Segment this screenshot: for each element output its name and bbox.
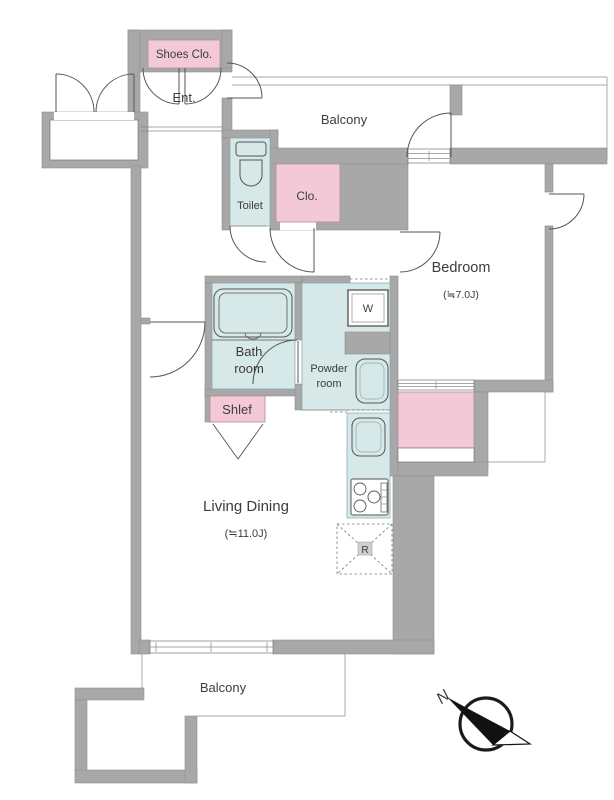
- shelf-label: Shlef: [222, 402, 252, 417]
- living-dining-label: Living Dining: [203, 498, 289, 515]
- living-dining-size-label: (≒11.0J): [225, 528, 268, 540]
- floor-plan: N Shoes Clo. Ent. Balcony Toilet Clo. Be…: [0, 0, 614, 800]
- bedroom-closet-floor: [398, 392, 474, 448]
- closet-niche: [398, 448, 474, 462]
- closet-label: Clo.: [296, 189, 317, 203]
- entrance-label: Ent.: [172, 90, 195, 105]
- balcony-top-label: Balcony: [321, 112, 368, 127]
- bathroom-label-line2: room: [234, 361, 264, 376]
- stove-icon: [351, 479, 388, 515]
- bathroom-label-line1: Bath: [236, 344, 263, 359]
- powder-label-line1: Powder: [310, 363, 348, 375]
- bedroom-balcony-window: [408, 149, 450, 163]
- living-balcony-window: [150, 641, 273, 653]
- toilet-label: Toilet: [237, 200, 263, 212]
- fridge-label: R: [361, 545, 368, 556]
- shoes-closet-label: Shoes Clo.: [156, 49, 212, 61]
- washer-label: W: [363, 303, 374, 315]
- powder-counter-block: [345, 332, 390, 354]
- floor-plan-canvas: N Shoes Clo. Ent. Balcony Toilet Clo. Be…: [0, 0, 614, 800]
- balcony-bottom-label: Balcony: [200, 680, 247, 695]
- kitchen-sink-icon: [352, 418, 385, 456]
- bedroom-size-label: (≒7.0J): [443, 289, 479, 301]
- powder-label-line2: room: [316, 378, 341, 390]
- bedroom-label: Bedroom: [432, 260, 491, 276]
- bedroom-closet-slider: [398, 380, 474, 390]
- powder-sink-icon: [356, 359, 388, 403]
